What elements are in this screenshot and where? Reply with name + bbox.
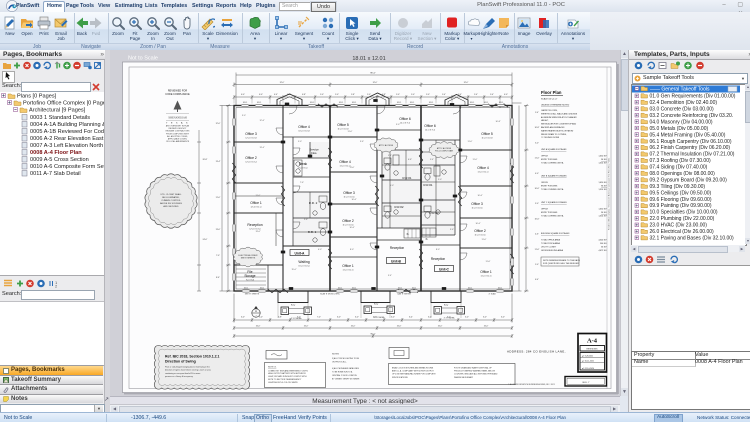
svg-text:6'-4": 6'-4"	[409, 316, 413, 318]
svg-text:09.5 Ceilings (Div 09.50.00): 09.5 Ceilings (Div 09.50.00)	[650, 190, 712, 196]
svg-text:NOTE #1: NOTE #1	[268, 367, 277, 369]
svg-text:16'-0": 16'-0"	[397, 325, 402, 327]
svg-text:SEE E SHEETS: SEE E SHEETS	[241, 258, 256, 260]
svg-text:TOTAL OFFICE AREA: TOTAL OFFICE AREA	[541, 239, 561, 242]
svg-text:BY OWNER. VERIFY W/ OWNER: BY OWNER. VERIFY W/ OWNER	[332, 378, 360, 380]
svg-text:Office 6: Office 6	[424, 124, 436, 128]
svg-text:Reception: Reception	[431, 257, 446, 261]
svg-text:UNIT C SQUARE FOOTAGES: UNIT C SQUARE FOOTAGES	[541, 201, 567, 204]
svg-text:OFFICE: OFFICE	[541, 182, 549, 184]
svg-text:10'-0 X 9'-0: 10'-0 X 9'-0	[400, 122, 411, 124]
svg-text:32.1 Paving and Bases (Div 32: 32.1 Paving and Bases (Div 32.10.00)	[650, 236, 735, 242]
svg-text:RELIEF DRAIN TO OUTSIDE,: RELIEF DRAIN TO OUTSIDE,	[541, 133, 567, 136]
svg-text:5'-4": 5'-4"	[458, 94, 462, 96]
svg-text:5'-4": 5'-4"	[388, 155, 392, 157]
svg-text:2: 2	[55, 284, 58, 289]
svg-text:5'-0": 5'-0"	[396, 94, 400, 96]
svg-text:6'-0": 6'-0"	[337, 316, 341, 318]
svg-text:12'-6 X 13'-4: 12'-6 X 13'-4	[245, 161, 257, 163]
svg-text:SEE 'E' SHEETS: SEE 'E' SHEETS	[245, 293, 260, 295]
svg-text:5'-4": 5'-4"	[490, 94, 494, 96]
svg-text:UNIT A SQUARE FOOTAGES: UNIT A SQUARE FOOTAGES	[541, 148, 567, 151]
svg-text:SLAB 'E' MONOLITHIC: SLAB 'E' MONOLITHIC	[320, 292, 340, 295]
svg-text:10'-6": 10'-6"	[349, 227, 354, 229]
svg-text:COUNTER. INSULATE ALL EXPOSED: COUNTER. INSULATE ALL EXPOSED PIPES AND	[454, 373, 498, 376]
svg-text:16'-0": 16'-0"	[484, 325, 489, 327]
svg-text:11'-0 X 10'-8: 11'-0 X 10'-8	[481, 137, 493, 139]
svg-text:Office 5: Office 5	[337, 123, 349, 127]
svg-text:12'-6 X 10'-8: 12'-6 X 10'-8	[245, 137, 257, 139]
svg-text:ABOVE RG SCURGES: ABOVE RG SCURGES	[160, 202, 182, 205]
svg-text:10'-0 X 10'-8: 10'-0 X 10'-8	[298, 130, 310, 132]
svg-text:10'-8": 10'-8"	[495, 121, 500, 123]
svg-text:▲1 9-28-2021: ▲1 9-28-2021	[582, 354, 593, 357]
svg-text:Office 3: Office 3	[343, 191, 355, 195]
svg-text:SCALE 1/4"=1'-0": SCALE 1/4"=1'-0"	[541, 98, 558, 101]
svg-text:8'-0": 8'-0"	[436, 249, 440, 251]
svg-text:96 S.F.: 96 S.F.	[601, 159, 607, 161]
svg-text:10'-6": 10'-6"	[475, 223, 480, 225]
svg-text:3'-0": 3'-0"	[535, 142, 539, 144]
svg-text:0008 A-4 Floor Plan: 0008 A-4 Floor Plan	[30, 150, 82, 156]
svg-text:06.2 Finish Carpentry (Div 06: 06.2 Finish Carpentry (Div 06.20.00)	[650, 145, 731, 151]
svg-text:0010 A-6 Composite Form Set:P: 0010 A-6 Composite Form Set:Plan	[30, 164, 104, 170]
svg-text:Clos.: Clos.	[311, 151, 318, 155]
svg-text:24'-0": 24'-0"	[203, 239, 208, 241]
svg-text:5'-4": 5'-4"	[442, 94, 446, 96]
svg-text:105.1: 105.1	[339, 102, 344, 104]
svg-text:R.R.#2: R.R.#2	[430, 211, 439, 215]
svg-text:6'-0": 6'-0"	[318, 249, 322, 251]
svg-text:02.4 Demolition (Div 02.40.00: 02.4 Demolition (Div 02.40.00)	[650, 100, 718, 106]
svg-text:LIGHTING FIX'LG COLOR: WHITE: LIGHTING FIX'LG COLOR: WHITE	[268, 382, 298, 384]
svg-text:105.1: 105.1	[397, 102, 402, 104]
svg-text:'O' CEILINGS DOWN: 'O' CEILINGS DOWN	[541, 137, 560, 139]
svg-text:PULL DOWN STAIR: PULL DOWN STAIR	[435, 150, 454, 153]
svg-text:TOTAL COVERED UNIT A: TOTAL COVERED UNIT A	[541, 215, 564, 218]
svg-text:11'-6": 11'-6"	[535, 249, 540, 251]
svg-text:Unit-A: Unit-A	[295, 251, 306, 255]
svg-text:Waiting: Waiting	[298, 260, 309, 264]
svg-text:TO BE HOME RUN TO A: TO BE HOME RUN TO A	[332, 371, 353, 374]
svg-text:LIGHT, BX NMR. RUN MUST COMPLY: LIGHT, BX NMR. RUN MUST COMPLY WITH	[268, 376, 307, 378]
svg-text:3) ALL PORCH LIGHTING TO BE: 3) ALL PORCH LIGHTING TO BE	[332, 357, 360, 360]
svg-text:5'-0": 5'-0"	[335, 94, 339, 96]
svg-text:5'-8": 5'-8"	[351, 94, 355, 96]
svg-text:23.0 HVAC (Div 23.00.00): 23.0 HVAC (Div 23.00.00)	[650, 223, 708, 229]
svg-text:6'-0": 6'-0"	[259, 94, 263, 96]
svg-text:6'-8": 6'-8"	[408, 159, 412, 161]
svg-text:05.0 Metals (Div 05.00.00): 05.0 Metals (Div 05.00.00)	[650, 126, 709, 132]
svg-text:Office 4: Office 4	[477, 166, 489, 170]
svg-text:persons or a Group H occupancy: persons or a Group H occupancy.	[165, 375, 194, 378]
svg-text:ALUMINUM WINDOWS AT 8'-0" HEAD: ALUMINUM WINDOWS AT 8'-0" HEADER	[541, 116, 577, 119]
svg-text:4'-0": 4'-0"	[504, 94, 508, 96]
svg-text:R.R.#1: R.R.#1	[424, 183, 433, 187]
svg-text:0005 A-1B Reviewed For Code C: 0005 A-1B Reviewed For Code Co...	[30, 129, 104, 135]
svg-text:6'-0": 6'-0"	[259, 316, 263, 318]
svg-text:4' X 8' AREA: 4' X 8' AREA	[291, 317, 302, 320]
svg-text:10'-6": 10'-6"	[535, 218, 540, 220]
svg-text:WHERE NECESSARY: WHERE NECESSARY	[454, 376, 474, 379]
svg-text:Ref. IBC 2018, Section 1010.1.: Ref. IBC 2018, Section 1010.1.2.1	[165, 355, 220, 359]
svg-text:16'-0": 16'-0"	[351, 325, 356, 327]
svg-text:105.1: 105.1	[244, 288, 249, 290]
svg-text:4) ALL PHONE AND DATA LINES: 4) ALL PHONE AND DATA LINES	[332, 367, 360, 370]
svg-text:Office 3: Office 3	[245, 132, 257, 136]
svg-text:10'-6": 10'-6"	[535, 188, 540, 190]
svg-text:Portofino Office Complex [0 Pa: Portofino Office Complex [0 Pages]	[23, 101, 104, 107]
svg-text:SHENANDOAH: SHENANDOAH	[168, 116, 187, 120]
svg-text:11'-0": 11'-0"	[535, 158, 540, 160]
svg-text:09.9 Painting (Div 09.90.00): 09.9 Painting (Div 09.90.00)	[650, 203, 712, 209]
svg-text:1,650 S.F.: 1,650 S.F.	[598, 209, 607, 211]
svg-text:▲3 12-14-2020: ▲3 12-14-2020	[582, 367, 594, 370]
svg-text:04.0 Masonry (Div 04.00.00): 04.0 Masonry (Div 04.00.00)	[650, 119, 713, 125]
svg-text:6'-4": 6'-4"	[428, 316, 432, 318]
svg-text:ADDRESS: 284 CO ENGLISH LANE,: ADDRESS: 284 CO ENGLISH LANE,	[507, 350, 566, 354]
svg-text:36 S.F.: 36 S.F.	[601, 247, 607, 249]
svg-text:13'-4": 13'-4"	[216, 161, 221, 163]
svg-text:BACKSPLASH SURFACES: BACKSPLASH SURFACES	[541, 126, 565, 129]
svg-text:22.0 Plumbing (Div 22.00.00): 22.0 Plumbing (Div 22.00.00)	[650, 216, 715, 222]
svg-text:ENTRY PORCHES: ENTRY PORCHES	[541, 186, 558, 188]
svg-text:0007 A-3 Left Elevation North: 0007 A-3 Left Elevation North	[30, 143, 103, 149]
svg-text:SHEETROCK ALL WALLS AND CEILIN: SHEETROCK ALL WALLS AND CEILINGS	[541, 112, 578, 115]
svg-text:32'-0": 32'-0"	[280, 82, 285, 84]
svg-text:96 S.F.: 96 S.F.	[601, 212, 607, 214]
svg-text:11'-0": 11'-0"	[473, 159, 478, 161]
svg-text:4" SLAB: 4" SLAB	[488, 292, 496, 295]
svg-text:Office 1: Office 1	[342, 264, 354, 268]
svg-text:10'-6": 10'-6"	[351, 199, 356, 201]
svg-text:7'-6": 7'-6"	[300, 182, 304, 184]
svg-text:WATER HEATER IN ATTIC W FAN W/: WATER HEATER IN ATTIC W FAN W/	[541, 129, 574, 132]
svg-text:4'-6": 4'-6"	[535, 234, 539, 236]
svg-text:K.: K.	[407, 232, 410, 236]
svg-text:Early: Early	[291, 303, 295, 306]
svg-text:TOTAL PORCH AREA: TOTAL PORCH AREA	[541, 242, 561, 245]
svg-text:TOTAL COVERED UNIT A: TOTAL COVERED UNIT A	[541, 188, 564, 191]
svg-text:UTIL. CLOSET SHALL: UTIL. CLOSET SHALL	[160, 193, 182, 196]
svg-text:NOTE TO SECTION 7/A EMERGENCY: NOTE TO SECTION 7/A EMERGENCY	[268, 378, 302, 381]
svg-text:6'-8": 6'-8"	[278, 316, 282, 318]
svg-text:7: 7	[256, 315, 257, 317]
svg-text:105.1: 105.1	[499, 102, 504, 104]
svg-text:5'-4": 5'-4"	[430, 159, 434, 161]
svg-text:© ALLMARK-SEVENTH BUSINESSHOME: © ALLMARK-SEVENTH BUSINESSHOMES, INC. 20…	[508, 383, 555, 386]
svg-text:11'-0": 11'-0"	[482, 239, 487, 241]
svg-text:ANY OVERSIGHT IN PLAN: ANY OVERSIGHT IN PLAN	[166, 125, 190, 128]
svg-text:16'-0": 16'-0"	[256, 325, 261, 327]
svg-text:15'-0": 15'-0"	[291, 269, 296, 271]
svg-text:APPLICABLE CODES,: APPLICABLE CODES,	[168, 138, 188, 141]
svg-text:HIGH OUTPUT BATTERY WITH EXTER: HIGH OUTPUT BATTERY WITH EXTERIOR	[268, 372, 306, 375]
svg-text:ENTRY PORCHES: ENTRY PORCHES	[541, 212, 558, 214]
svg-text:9'-4": 9'-4"	[388, 275, 392, 277]
svg-text:13'-0": 13'-0"	[255, 231, 260, 233]
svg-text:105.1: 105.1	[257, 102, 262, 104]
svg-text:1,314 S.F.: 1,314 S.F.	[598, 163, 607, 165]
svg-text:32'-0": 32'-0"	[464, 82, 469, 84]
svg-text:4'-0": 4'-0"	[535, 173, 539, 175]
svg-text:FOR QUESTIONS CALL THE BUILDER: FOR QUESTIONS CALL THE BUILDER	[543, 262, 579, 265]
svg-text:Storage: Storage	[244, 274, 255, 278]
svg-text:105.1: 105.1	[398, 288, 403, 290]
svg-text:Reception: Reception	[247, 223, 262, 227]
svg-text:8'-0": 8'-0"	[350, 249, 354, 251]
svg-text:3'-0": 3'-0"	[535, 203, 539, 205]
svg-text:1,650 S.F.: 1,650 S.F.	[598, 182, 607, 184]
svg-text:5'-0": 5'-0"	[426, 94, 430, 96]
svg-text:105.1: 105.1	[468, 288, 473, 290]
svg-text:R.R.#1: R.R.#1	[403, 176, 412, 180]
svg-text:16'-0": 16'-0"	[304, 325, 309, 327]
svg-text:105.1: 105.1	[412, 288, 417, 290]
svg-text:7'-0": 7'-0"	[216, 255, 220, 257]
svg-text:32'-0": 32'-0"	[373, 82, 378, 84]
svg-text:05.4 Metal Framing (Div 05.40: 05.4 Metal Framing (Div 05.40.00)	[650, 132, 726, 138]
svg-text:105.1: 105.1	[260, 288, 265, 290]
svg-text:UNIT B SQUARE FOOTAGES: UNIT B SQUARE FOOTAGES	[541, 175, 567, 178]
svg-text:Office 5: Office 5	[481, 132, 493, 136]
svg-text:4'-8": 4'-8"	[382, 94, 386, 96]
svg-text:SPECIFICATIONS: SPECIFICATIONS	[392, 376, 408, 379]
svg-text:96'-0": 96'-0"	[370, 73, 376, 75]
svg-text:07.4 Siding (Div 07.40.00): 07.4 Siding (Div 07.40.00)	[650, 165, 708, 171]
svg-text:ARE U.L.A. COMPLIANT WITH 4 HI: ARE U.L.A. COMPLIANT WITH 4 HIGH OUTPUT	[392, 370, 435, 373]
svg-text:3'-6": 3'-6"	[450, 229, 454, 231]
svg-text:300 S.F.: 300 S.F.	[600, 243, 607, 245]
svg-text:Early: Early	[374, 302, 378, 305]
svg-text:96 S.F.: 96 S.F.	[601, 186, 607, 188]
svg-text:11'-0 X 10'-6: 11'-0 X 10'-6	[471, 207, 483, 209]
svg-text:FOOTE DRAIN AND WASHT DISPOSAL: FOOTE DRAIN AND WASHT DISPOSAL OF	[454, 367, 492, 370]
svg-text:REVISIONS: REVISIONS	[587, 349, 599, 351]
svg-text:OF 0.5W SEE MANUFACTURER FOR C: OF 0.5W SEE MANUFACTURER FOR COMPLETE	[392, 373, 436, 376]
svg-text:6'-0": 6'-0"	[241, 94, 245, 96]
svg-text:8'-6": 8'-6"	[216, 277, 220, 279]
svg-text:09.6 Flooring (Div 09.60.00): 09.6 Flooring (Div 09.60.00)	[650, 197, 712, 203]
svg-text:96'-0": 96'-0"	[370, 334, 375, 336]
svg-text:4'-0": 4'-0"	[287, 94, 291, 96]
svg-text:5'-4": 5'-4"	[474, 94, 478, 96]
svg-text:5'-0": 5'-0"	[390, 185, 394, 187]
svg-text:Pivot or side-hinged swinging: Pivot or side-hinged swinging doors shal…	[165, 366, 210, 369]
svg-text:105.1: 105.1	[484, 102, 489, 104]
svg-text:11'-0 X 11'-0: 11'-0 X 11'-0	[478, 171, 490, 173]
svg-text:Unit-B: Unit-B	[391, 259, 402, 263]
svg-text:18.01 x 12.01: 18.01 x 12.01	[352, 56, 385, 62]
svg-text:R.R. 2: R.R. 2	[309, 201, 318, 205]
svg-text:5'-0": 5'-0"	[535, 264, 539, 266]
svg-text:Not to Scale: Not to Scale	[128, 56, 158, 62]
svg-text:5'-0": 5'-0"	[298, 141, 302, 143]
svg-text:11'-0": 11'-0"	[216, 197, 221, 199]
svg-text:ATTIC ACCESS: ATTIC ACCESS	[379, 144, 394, 147]
svg-text:10'-8": 10'-8"	[535, 127, 540, 129]
svg-text:3'-6": 3'-6"	[360, 141, 364, 143]
svg-text:Direction of Swing: Direction of Swing	[165, 360, 196, 364]
svg-text:11'-0": 11'-0"	[256, 195, 261, 197]
svg-text:11'-6": 11'-6"	[486, 261, 491, 263]
svg-text:105.1: 105.1	[338, 288, 343, 290]
svg-text:0006 A-2 Rear Elevation East: 0006 A-2 Rear Elevation East	[30, 136, 104, 142]
svg-text:Office 2: Office 2	[342, 219, 354, 223]
svg-text:8'-0 X 6'-0: 8'-0 X 6'-0	[299, 167, 309, 169]
svg-text:K.: K.	[426, 237, 429, 241]
svg-text:5'-0": 5'-0"	[320, 94, 324, 96]
svg-text:03.2 Concrete Reinforcing (Di: 03.2 Concrete Reinforcing (Div 03.20.	[650, 113, 734, 119]
svg-text:07.3 Roofing (Div 07.30.00): 07.3 Roofing (Div 07.30.00)	[650, 158, 711, 164]
svg-text:9'-0": 9'-0"	[396, 124, 400, 126]
svg-text:Break: Break	[299, 162, 308, 166]
svg-text:Plans [0 Pages]: Plans [0 Pages]	[17, 94, 57, 100]
svg-text:Office 2: Office 2	[245, 156, 257, 160]
svg-text:ENTRY PORCHES: ENTRY PORCHES	[541, 159, 558, 161]
svg-text:12'-0": 12'-0"	[216, 123, 221, 125]
svg-text:5'-0": 5'-0"	[438, 179, 442, 181]
svg-text:105.1: 105.1	[410, 102, 415, 104]
svg-text:—— General Takeoff Tools: —— General Takeoff Tools	[650, 86, 710, 92]
svg-text:Portofino Office Complex -: Portofino Office Complex - Shenandoah Bu…	[608, 158, 611, 230]
svg-text:OFFICE: OFFICE	[541, 209, 549, 211]
svg-text:5'-4": 5'-4"	[535, 112, 539, 114]
svg-text:09.3 Tiling (Div 09.30.00): 09.3 Tiling (Div 09.30.00)	[650, 184, 706, 190]
svg-text:105.1: 105.1	[498, 288, 503, 290]
svg-text:NOTE DIMENSIONS ARE TO THE FAC: NOTE DIMENSIONS ARE TO THE FACE	[543, 259, 581, 262]
svg-text:105.1: 105.1	[352, 288, 357, 290]
svg-text:BUILDING SQUARE FOOTAGES: BUILDING SQUARE FOOTAGES	[541, 232, 570, 235]
svg-text:03.0 Concrete (Div 03.00.00): 03.0 Concrete (Div 03.00.00)	[650, 107, 715, 113]
svg-text:13'-0": 13'-0"	[216, 229, 221, 231]
svg-text:01.0 Gen Requirements (Div 01: 01.0 Gen Requirements (Div 01.00.00)	[650, 94, 736, 100]
svg-text:PRODUCTS BEHIND WASHED PANEL B: PRODUCTS BEHIND WASHED PANEL BELOW	[454, 370, 495, 373]
svg-text:11'-0": 11'-0"	[468, 141, 473, 143]
svg-text:Office 4: Office 4	[339, 160, 351, 164]
svg-text:NOTES: NOTES	[332, 354, 340, 356]
svg-text:GAS 'E' METER: GAS 'E' METER	[397, 292, 411, 295]
svg-text:13'-4": 13'-4"	[259, 147, 264, 149]
svg-text:10'-6": 10'-6"	[477, 195, 482, 197]
svg-text:105.1: 105.1	[352, 102, 357, 104]
svg-text:6'-0": 6'-0"	[355, 316, 359, 318]
svg-text:105.1: 105.1	[429, 102, 434, 104]
svg-text:5'-0": 5'-0"	[367, 94, 371, 96]
svg-text:11'-0": 11'-0"	[350, 167, 355, 169]
svg-text:GROSS BUILDING AREA: GROSS BUILDING AREA	[541, 249, 564, 252]
svg-text:Office 2: Office 2	[474, 229, 486, 233]
svg-text:5'-6": 5'-6"	[304, 219, 308, 221]
svg-text:CLIMATE CONTROL: CLIMATE CONTROL	[161, 199, 181, 202]
svg-text:0004 A-1A Building Planning &: 0004 A-1A Building Planning & Des...	[30, 122, 104, 128]
svg-text:11'-0 X 11'-6: 11'-0 X 11'-6	[481, 275, 493, 277]
svg-text:11'-0 X 10'-6: 11'-0 X 10'-6	[474, 234, 486, 236]
svg-text:12'-6 X 11'-0: 12'-6 X 11'-0	[250, 206, 262, 208]
svg-text:26.0 Electrical (Div 26.00.00: 26.0 Electrical (Div 26.00.00)	[650, 229, 715, 235]
svg-text:TOTAL COVERED UNIT A: TOTAL COVERED UNIT A	[541, 162, 564, 165]
svg-text:Architectural [9 Pages]: Architectural [9 Pages]	[29, 108, 86, 114]
svg-text:UTILITY CLOSET: UTILITY CLOSET	[541, 247, 557, 249]
svg-text:08.0 Openings (Div 08.00.00): 08.0 Openings (Div 08.00.00)	[650, 171, 716, 177]
svg-text:▲2 10-11-2021: ▲2 10-11-2021	[582, 359, 594, 362]
svg-text:0003 1 Standard Details: 0003 1 Standard Details	[30, 115, 90, 121]
svg-text:Reception: Reception	[390, 246, 405, 250]
svg-text:0009 A-5 Cross Section: 0009 A-5 Cross Section	[30, 157, 89, 163]
svg-text:OFFICE: OFFICE	[541, 156, 549, 158]
svg-text:105.1: 105.1	[310, 102, 315, 104]
svg-text:105.1: 105.1	[470, 102, 475, 104]
svg-text:CENTRAL 'D' BOX LOCATION: CENTRAL 'D' BOX LOCATION	[332, 374, 357, 377]
svg-text:AND SECURED: AND SECURED	[163, 205, 179, 208]
svg-text:10'-0 X 9'-0: 10'-0 X 9'-0	[425, 129, 436, 131]
svg-text:6'-4": 6'-4"	[535, 279, 539, 281]
svg-text:11'-0": 11'-0"	[348, 131, 353, 133]
svg-text:4'-4": 4'-4"	[274, 94, 278, 96]
svg-text:COMBO EXT SIGN AND EMERGENCY L: COMBO EXT SIGN AND EMERGENCY LIGHT,	[268, 369, 308, 372]
svg-text:7'-0": 7'-0"	[317, 316, 321, 318]
svg-text:4,672 S.F.: 4,672 S.F.	[598, 250, 607, 252]
svg-text:0011 A-7 Slab Detail: 0011 A-7 Slab Detail	[30, 171, 81, 177]
svg-text:Office 3: Office 3	[471, 202, 483, 206]
svg-text:6'-8": 6'-8"	[302, 94, 306, 96]
svg-text:BLD. 7: BLD. 7	[583, 382, 590, 384]
svg-text:Office 1: Office 1	[250, 201, 262, 205]
svg-text:1,650 S.F.: 1,650 S.F.	[598, 156, 607, 158]
svg-text:Office 4: Office 4	[298, 125, 310, 129]
svg-text:OR LOCAL AMENDMENTS: OR LOCAL AMENDMENTS	[166, 140, 190, 143]
svg-text:09.2 Gypsum Board (Div 09.20.: 09.2 Gypsum Board (Div 09.20.00)	[650, 178, 728, 184]
svg-text:A-4: A-4	[587, 338, 598, 345]
svg-text:Early: Early	[444, 303, 448, 306]
svg-text:26'-8": 26'-8"	[203, 159, 208, 161]
svg-text:CODE COMPLIANCE: CODE COMPLIANCE	[165, 93, 190, 96]
svg-text:CARPET FLOORS,: CARPET FLOORS,	[541, 109, 558, 112]
svg-text:5'-0": 5'-0"	[411, 94, 415, 96]
svg-text:6'-0": 6'-0"	[465, 316, 469, 318]
svg-text:9-0 X 8-6: 9-0 X 8-6	[246, 280, 255, 282]
svg-text:11'-0 X 11'-6: 11'-0 X 11'-6	[343, 269, 355, 271]
svg-text:3'-0": 3'-0"	[242, 115, 246, 117]
svg-text:16'-0": 16'-0"	[438, 325, 443, 327]
svg-text:Floor Plan: Floor Plan	[541, 90, 562, 95]
svg-text:4' X 8' AREA: 4' X 8' AREA	[374, 316, 385, 319]
svg-text:BE ILLUMINATED,: BE ILLUMINATED,	[162, 196, 180, 199]
svg-text:6'-0": 6'-0"	[501, 316, 505, 318]
svg-text:Office 6: Office 6	[399, 117, 411, 121]
svg-text:Office 1: Office 1	[480, 270, 492, 274]
svg-text:6'-0": 6'-0"	[241, 316, 245, 318]
svg-text:ALL ADOPTED CODES,: ALL ADOPTED CODES,	[167, 135, 188, 138]
svg-text:15'-0 X 10'-0: 15'-0 X 10'-0	[298, 265, 310, 267]
svg-text:containing an occupant load of: containing an occupant load of 50 or mor…	[165, 372, 200, 375]
svg-text:6'-0": 6'-0"	[391, 316, 395, 318]
svg-text:direction of egress travel whe: direction of egress travel where serving…	[165, 369, 212, 372]
svg-text:10.0 Specialties (Div 10.00.0: 10.0 Specialties (Div 10.00.00)	[650, 210, 718, 216]
svg-text:ON PHOTOCELL,: ON PHOTOCELL,	[332, 361, 347, 363]
svg-text:Unit-C: Unit-C	[439, 267, 450, 271]
svg-text:R.R. 1: R.R. 1	[308, 230, 317, 234]
svg-text:4' X 8' AREA: 4' X 8' AREA	[444, 316, 455, 319]
svg-text:4,300 S.F.: 4,300 S.F.	[598, 240, 607, 242]
svg-text:07.2 Thermal Insulation (Div: 07.2 Thermal Insulation (Div 07.21.00)	[650, 152, 735, 158]
svg-text:SEE BUILDER FOR COUNTERTOP AND: SEE BUILDER FOR COUNTERTOP AND	[541, 123, 577, 126]
svg-text:UNLESS OTHERWISE NOTED: UNLESS OTHERWISE NOTED	[541, 105, 570, 107]
svg-text:HEIGHT,: HEIGHT,	[541, 120, 549, 122]
svg-text:1,314 S.F.: 1,314 S.F.	[598, 216, 607, 218]
svg-text:105.1: 105.1	[243, 102, 248, 104]
svg-text:1,314 S.F.: 1,314 S.F.	[598, 189, 607, 191]
